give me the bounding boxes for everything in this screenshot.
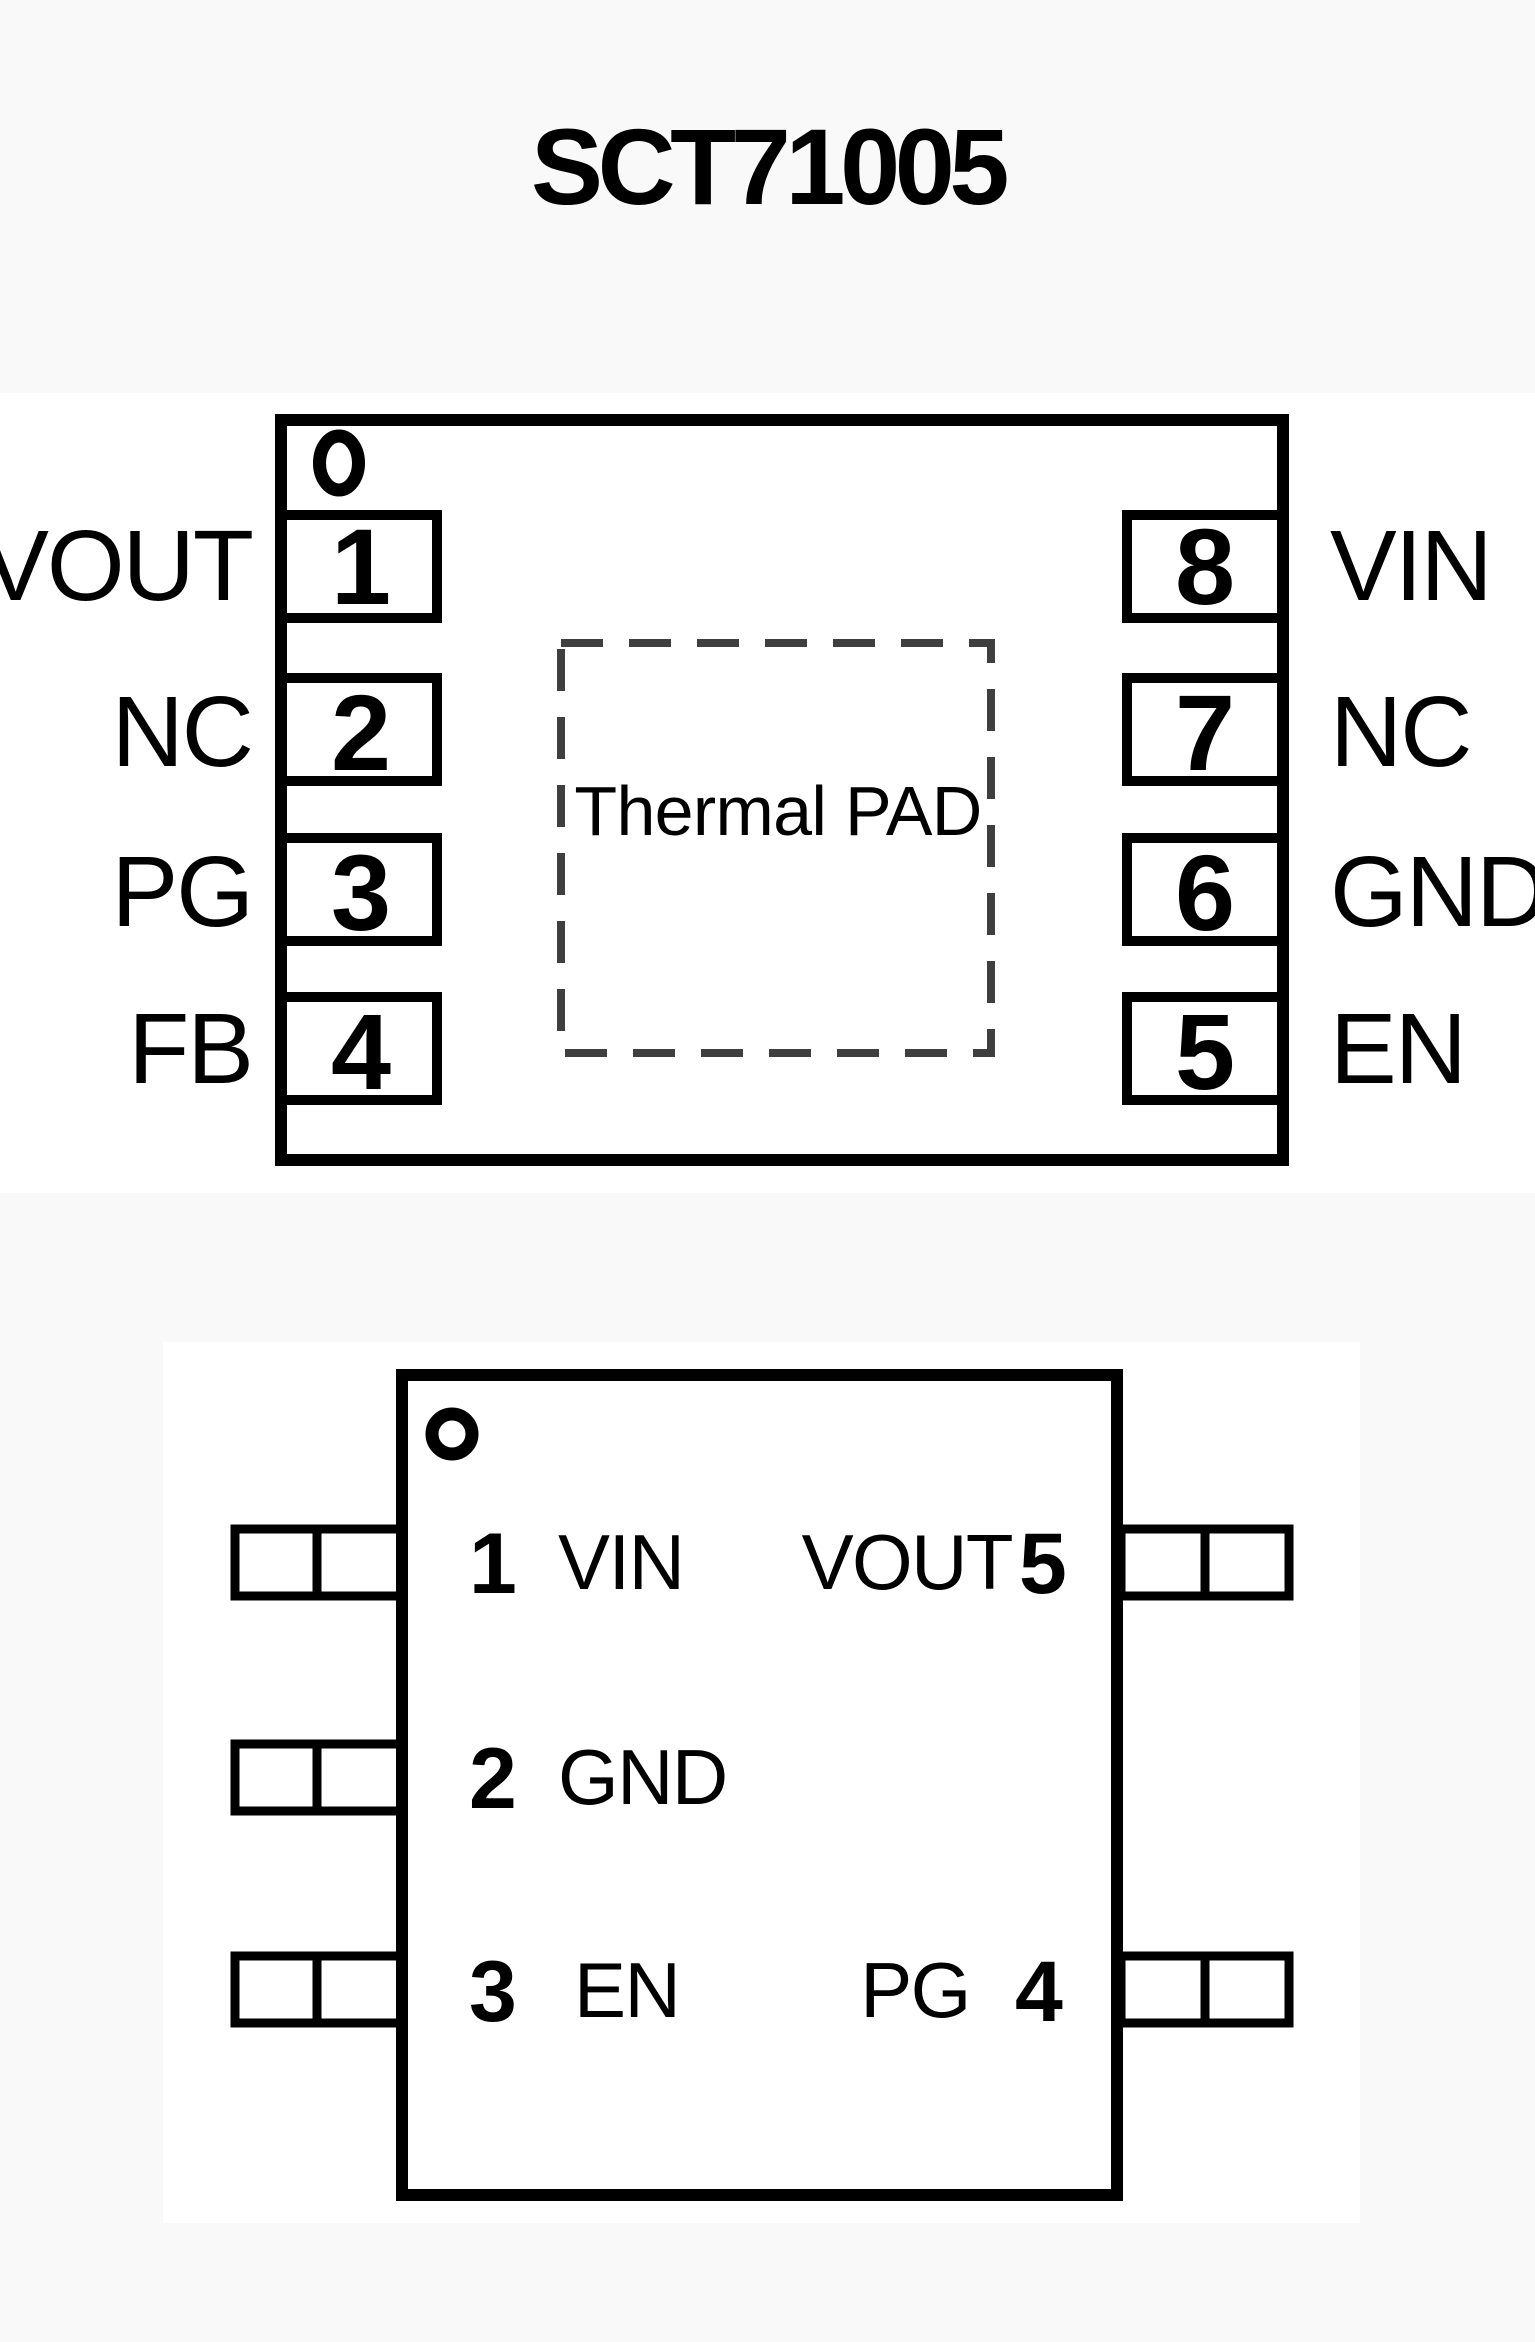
top-pin8-name: VIN bbox=[1330, 516, 1491, 616]
top-pin5-number: 5 bbox=[1175, 998, 1233, 1106]
top-pin8-number: 8 bbox=[1175, 513, 1233, 621]
top-pin3-number: 3 bbox=[331, 839, 389, 947]
top-pin5-name: EN bbox=[1330, 999, 1465, 1099]
thermal-pad-label: Thermal PAD bbox=[574, 776, 981, 846]
top-pin1-number: 1 bbox=[331, 513, 389, 621]
bottom-pin2-name: GND bbox=[558, 1738, 727, 1816]
bottom-pin5-name: VOUT bbox=[802, 1523, 1012, 1601]
bottom-pin3-name: EN bbox=[574, 1951, 679, 2029]
bottom-pin4-number: 4 bbox=[1015, 1949, 1061, 2035]
top-pin2-number: 2 bbox=[331, 679, 389, 787]
top-pin3-name: PG bbox=[112, 842, 252, 942]
pinout-linework bbox=[0, 0, 1535, 2342]
bottom-pin3-number: 3 bbox=[469, 1949, 515, 2035]
top-pin6-number: 6 bbox=[1175, 839, 1233, 947]
page-title: SCT71005 bbox=[0, 113, 1535, 221]
bottom-pin2-number: 2 bbox=[469, 1736, 515, 1822]
top-pin1-name: VOUT bbox=[0, 516, 252, 616]
bottom-pin1-number: 1 bbox=[469, 1521, 515, 1607]
top-pin4-name: FB bbox=[128, 999, 252, 1099]
top-pin6-name: GND bbox=[1330, 842, 1535, 942]
top-pin2-name: NC bbox=[112, 682, 252, 782]
bottom-pin1-name: VIN bbox=[558, 1523, 683, 1601]
top-pin4-number: 4 bbox=[331, 998, 389, 1106]
bottom-pin1-indicator-icon bbox=[432, 1414, 472, 1454]
bottom-left-leads bbox=[235, 1529, 402, 2023]
top-pin1-indicator-icon bbox=[320, 436, 359, 490]
pinout-page: SCT71005 VOUT NC PG FB 1 2 3 4 8 7 6 5 V… bbox=[0, 0, 1535, 2342]
top-pin7-name: NC bbox=[1330, 682, 1470, 782]
bottom-pin4-name: PG bbox=[860, 1951, 970, 2029]
bottom-pin5-number: 5 bbox=[1019, 1521, 1065, 1607]
bottom-right-leads bbox=[1121, 1529, 1289, 2023]
top-pin7-number: 7 bbox=[1175, 679, 1233, 787]
